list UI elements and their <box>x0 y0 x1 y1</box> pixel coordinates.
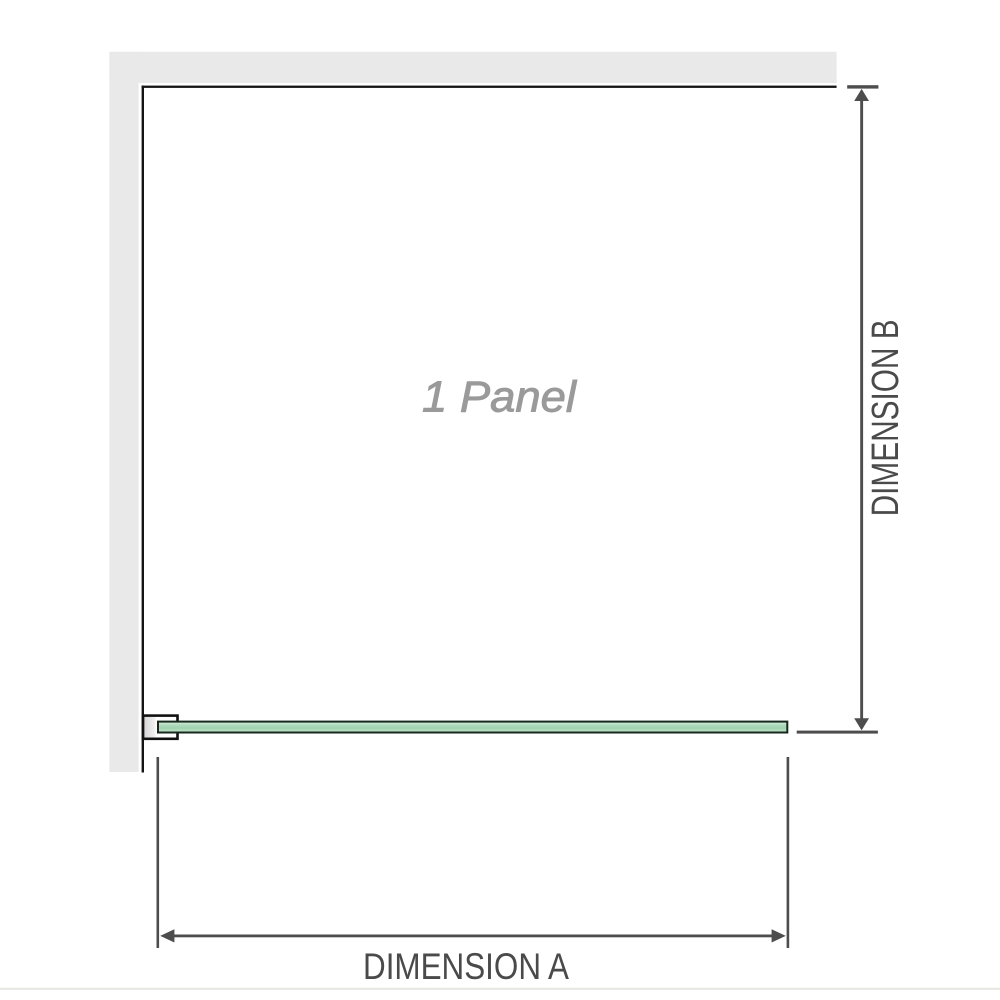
svg-text:DIMENSION B: DIMENSION B <box>865 319 907 516</box>
svg-text:1 Panel: 1 Panel <box>422 373 577 422</box>
svg-text:DIMENSION A: DIMENSION A <box>363 946 569 987</box>
